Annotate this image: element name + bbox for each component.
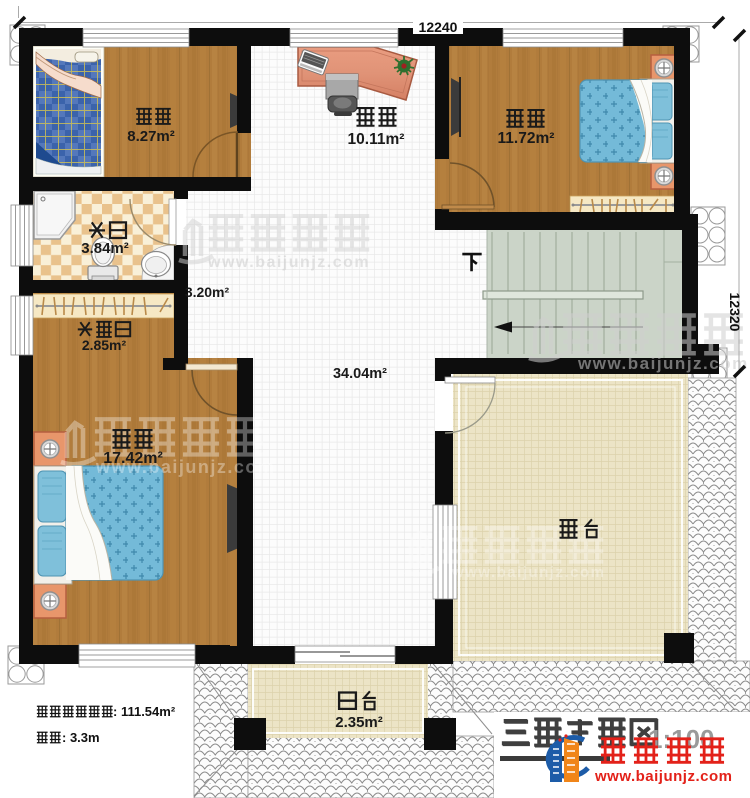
svg-text:3.20m²: 3.20m² [185,284,230,300]
svg-text:12240: 12240 [419,19,458,35]
svg-text:www.baijunjz.com: www.baijunjz.com [207,254,370,271]
svg-text:: 3.3m: : 3.3m [62,730,100,745]
svg-text:www.baijunjz.com: www.baijunjz.com [577,354,749,373]
svg-text:8.27m²: 8.27m² [127,128,175,145]
svg-text:www.baijunjz.com: www.baijunjz.com [451,564,605,581]
svg-text:www.baijunjz.com: www.baijunjz.com [594,768,732,785]
svg-text:11.72m²: 11.72m² [498,130,555,147]
svg-text:3.84m²: 3.84m² [81,240,129,257]
svg-text:: 111.54m²: : 111.54m² [113,704,176,719]
svg-text:12320: 12320 [727,293,743,332]
svg-text:2.85m²: 2.85m² [82,337,127,353]
svg-text:10.11m²: 10.11m² [348,131,405,148]
svg-text:2.35m²: 2.35m² [335,714,383,731]
svg-text:17.42m²: 17.42m² [103,450,163,467]
svg-text:34.04m²: 34.04m² [333,366,387,382]
